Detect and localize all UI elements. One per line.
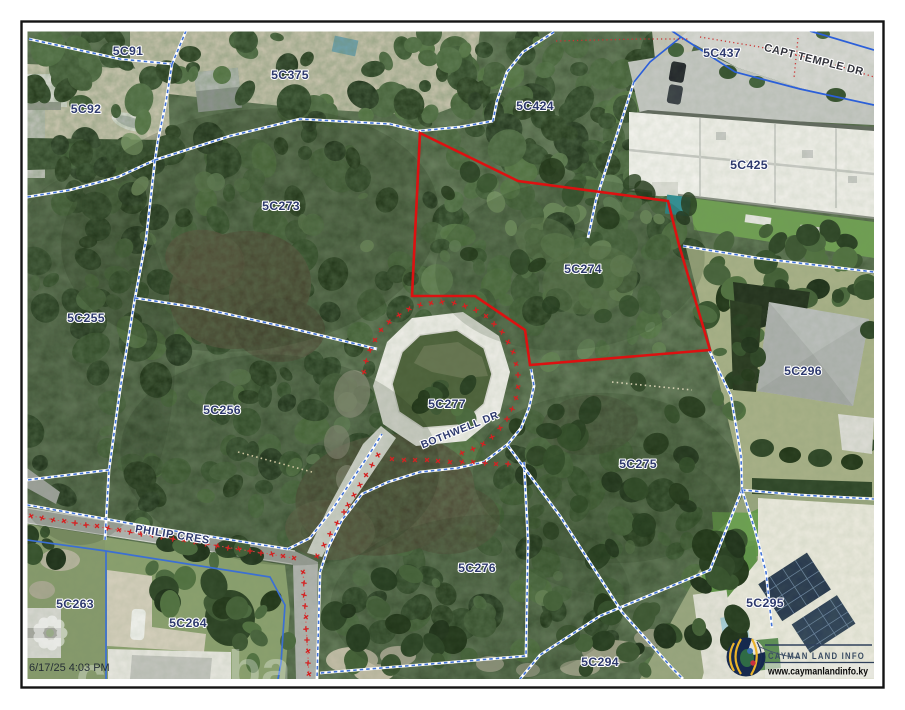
svg-text:6/17/25 4:03 PM: 6/17/25 4:03 PM — [29, 662, 110, 674]
svg-text:5C296: 5C296 — [784, 364, 822, 378]
svg-text:5C256: 5C256 — [203, 403, 241, 417]
svg-text:CAYMAN LAND INFO: CAYMAN LAND INFO — [768, 651, 865, 662]
svg-text:5C277: 5C277 — [428, 397, 466, 411]
svg-text:www.caymanlandinfo.ky: www.caymanlandinfo.ky — [767, 667, 868, 678]
svg-text:5C275: 5C275 — [619, 457, 657, 471]
svg-text:5C255: 5C255 — [67, 311, 105, 325]
svg-text:5C274: 5C274 — [564, 262, 602, 276]
svg-text:5C273: 5C273 — [262, 199, 300, 213]
svg-text:5C276: 5C276 — [458, 561, 496, 575]
svg-text:5C424: 5C424 — [516, 99, 554, 113]
svg-text:5C295: 5C295 — [746, 596, 784, 610]
svg-text:5C294: 5C294 — [581, 655, 619, 669]
svg-text:5C91: 5C91 — [113, 44, 144, 58]
svg-text:5C425: 5C425 — [730, 158, 768, 172]
svg-text:5C264: 5C264 — [169, 616, 207, 630]
svg-text:5C92: 5C92 — [71, 102, 102, 116]
svg-text:5C437: 5C437 — [703, 46, 741, 60]
svg-text:5C263: 5C263 — [56, 597, 94, 611]
svg-text:5C375: 5C375 — [271, 68, 309, 82]
